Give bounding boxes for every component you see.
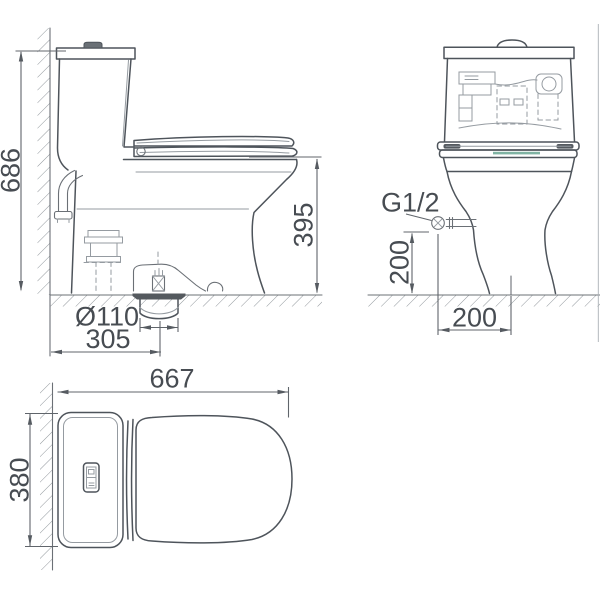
inlet-thread-label: G1/2 <box>381 188 440 218</box>
dim-overall-height-label: 686 <box>0 148 26 193</box>
cistern-mechanism <box>459 72 562 129</box>
front-view: G1/2 200 200 <box>368 24 600 342</box>
dim-inlet-offset-label: 200 <box>452 303 497 333</box>
dim-overall-height: 686 <box>0 51 66 292</box>
dim-seat-height-label: 395 <box>289 202 319 247</box>
technical-drawing-sheet: 686 395 Ø110 305 <box>0 0 600 600</box>
dim-overall-length: 667 <box>58 364 289 418</box>
dim-inlet-height-label: 200 <box>385 240 415 285</box>
wall-section <box>38 28 51 356</box>
top-view: 667 380 <box>5 364 293 571</box>
internal-flush-valve <box>84 231 223 292</box>
dim-overall-width-label: 380 <box>5 457 35 502</box>
flush-button <box>84 463 100 492</box>
dim-inlet-height: 200 <box>385 232 430 294</box>
dim-outlet-offset-label: 305 <box>85 324 130 354</box>
side-view: 686 395 Ø110 305 <box>0 28 322 357</box>
seat-front-band <box>438 142 580 158</box>
dim-outlet-offset: 305 <box>51 321 161 357</box>
toilet-dimension-diagram: 686 395 Ø110 305 <box>0 0 600 600</box>
dim-inlet-offset: 200 <box>438 234 511 335</box>
dim-overall-length-label: 667 <box>149 364 194 394</box>
toilet-top-outline <box>58 413 292 548</box>
top-wall-section <box>40 383 53 570</box>
seal-accent <box>493 152 540 155</box>
inlet-thread-callout: G1/2 <box>381 188 440 221</box>
toilet-front-outline <box>432 40 579 295</box>
dim-seat-height: 395 <box>249 157 322 294</box>
